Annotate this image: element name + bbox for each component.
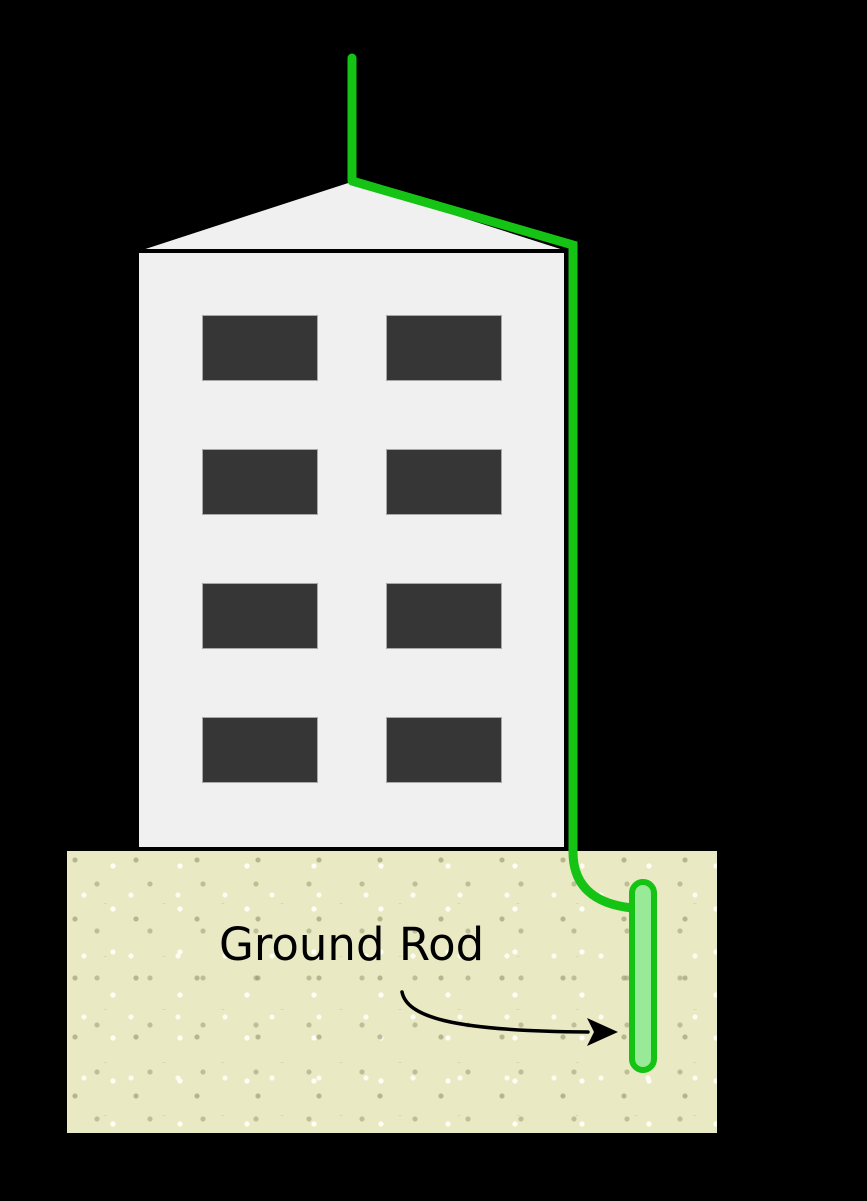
ground-rod-label: Ground Rod [219,922,484,967]
diagram-overlay [0,0,867,1201]
diagram-canvas: Ground Rod [0,0,867,1201]
building-roof [139,181,567,250]
down-conductor-wire [352,181,632,908]
annotation-arrowhead-icon [587,1018,618,1046]
annotation-arrow-line [402,992,588,1032]
ground-rod [632,882,654,1070]
